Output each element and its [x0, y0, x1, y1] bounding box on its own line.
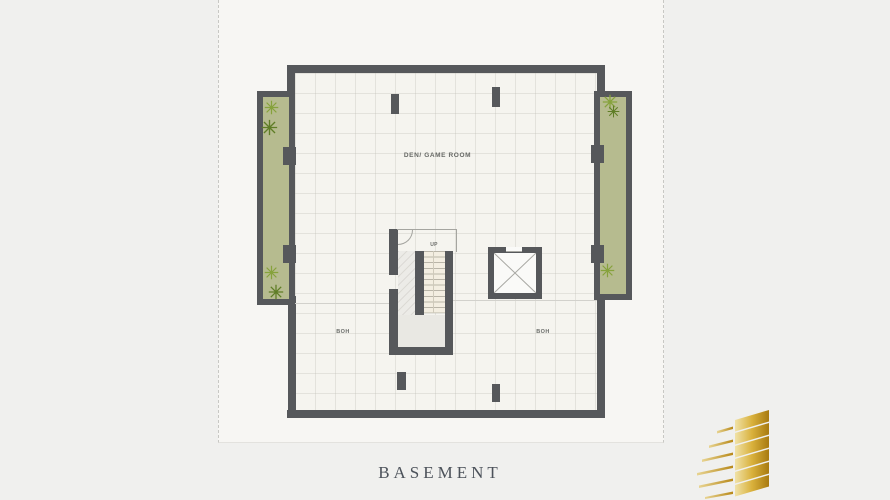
- elevator-shaft: [488, 247, 542, 299]
- stair-treads: [424, 251, 445, 313]
- wall-stub-right-1: [591, 145, 604, 163]
- column-bottom-1: [397, 372, 406, 390]
- stair-landing: [398, 315, 445, 347]
- stair-wall-right: [445, 251, 453, 347]
- stair-thin-wall-right: [456, 229, 457, 252]
- stair-center-line: [433, 251, 434, 313]
- stair-wall-left-lower: [389, 289, 398, 355]
- stair-up-label: UP: [425, 242, 443, 248]
- stair-underflight: [398, 251, 415, 315]
- stair-spine-wall: [415, 251, 424, 315]
- room-label-den-game-room: DEN/ GAME ROOM: [370, 152, 505, 159]
- wall-stub-right-2: [591, 245, 604, 263]
- column-top-2: [492, 87, 500, 107]
- plant-icon: [261, 119, 278, 136]
- wall-stub-left-2: [283, 245, 296, 263]
- column-top-1: [391, 94, 399, 114]
- wall-right-lower: [597, 293, 605, 418]
- gold-building-logo-icon: [693, 404, 773, 499]
- elevator-x-icon: [494, 253, 536, 293]
- stair-wall-bottom: [389, 347, 453, 355]
- floor-area: [295, 73, 597, 410]
- floor-plan-page: UP DEN/ GAME ROOM BOH BOH BASEMENT: [0, 0, 890, 500]
- wall-top: [287, 65, 605, 73]
- column-bottom-2: [492, 384, 500, 402]
- room-label-boh-right: BOH: [520, 329, 566, 335]
- room-label-boh-left: BOH: [320, 329, 366, 335]
- page-title: BASEMENT: [218, 463, 662, 483]
- plant-icon: [600, 263, 615, 278]
- stair-wall-left-upper: [389, 229, 398, 275]
- plant-icon: [607, 105, 620, 118]
- wall-left-lower: [288, 296, 296, 418]
- plant-icon: [268, 284, 284, 300]
- elevator-door-line: [506, 251, 522, 252]
- plant-icon: [264, 265, 279, 280]
- partition-left: [295, 303, 389, 304]
- wall-stub-left-1: [283, 147, 296, 165]
- plant-icon: [264, 100, 279, 115]
- wall-bottom: [287, 410, 605, 418]
- partition-right: [453, 300, 597, 301]
